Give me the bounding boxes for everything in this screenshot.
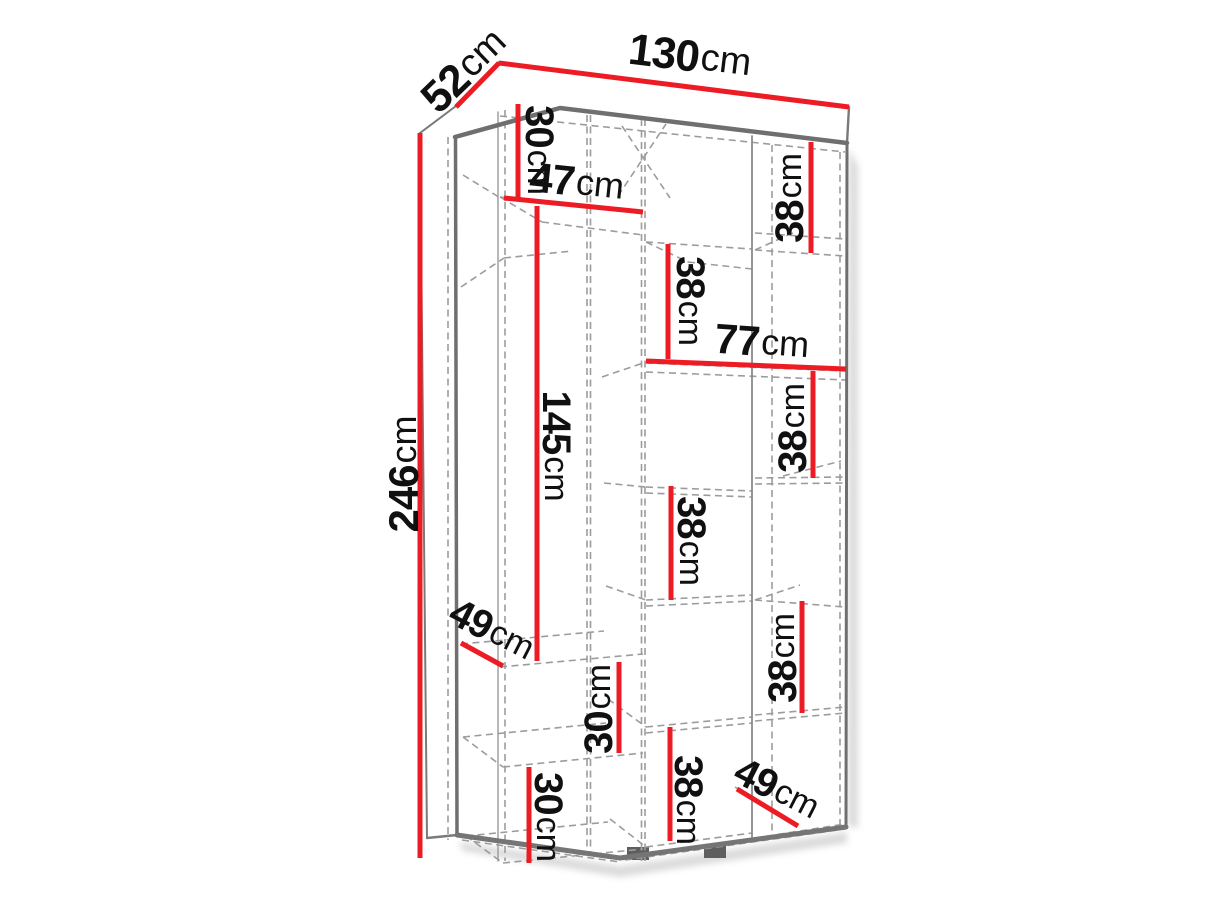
dimension-label-shelf-77: 77cm xyxy=(713,314,811,367)
dimension-label-left-145: 145cm xyxy=(534,390,578,501)
dimension-label-bottom-left-30: 30cm xyxy=(526,772,570,862)
dimension-label-height-246: 246cm xyxy=(380,415,427,532)
dimension-label-bottom-mid-38: 38cm xyxy=(666,755,710,845)
dimension-label-top-right-38: 38cm xyxy=(768,153,812,243)
dimension-label-mid-top-38: 38cm xyxy=(668,256,712,346)
dimension-label-right-low-38: 38cm xyxy=(761,613,805,703)
dimension-label-mid-low-30: 30cm xyxy=(577,664,621,754)
dimension-label-right-mid-38: 38cm xyxy=(771,383,815,473)
wardrobe-dimension-diagram: 52cm130cm246cm30cm47cm38cm38cm77cm145cm3… xyxy=(0,0,1214,911)
diagram-page: 52cm130cm246cm30cm47cm38cm38cm77cm145cm3… xyxy=(0,0,1214,911)
dimension-label-width-130: 130cm xyxy=(626,24,754,88)
dimension-label-mid-38: 38cm xyxy=(669,496,713,586)
